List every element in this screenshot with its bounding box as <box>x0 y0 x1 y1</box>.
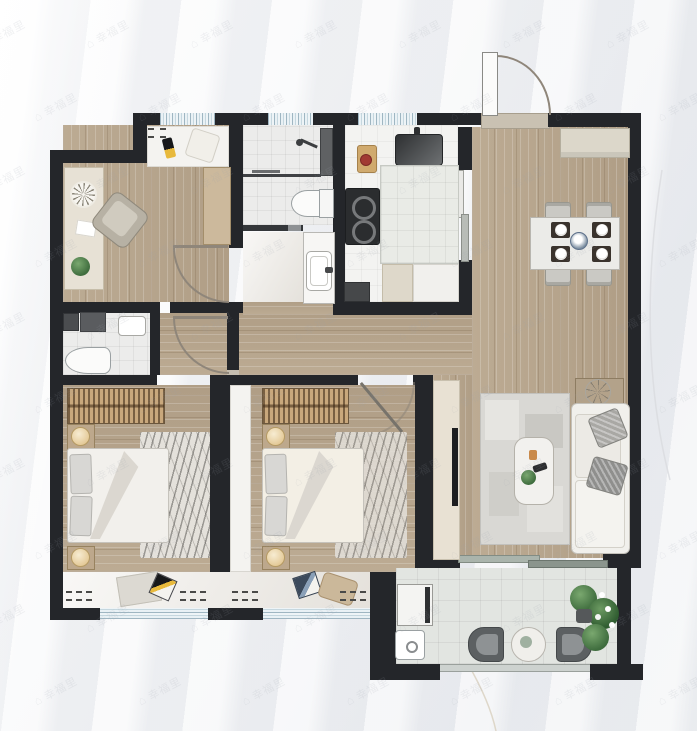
burner-icon <box>352 196 376 220</box>
bedroom2-lamp-top <box>266 427 285 446</box>
bedroom1-lamp-top <box>71 427 90 446</box>
wall-kitchen-living-bottom <box>458 260 472 302</box>
wall-bedroom1-top <box>63 375 157 385</box>
shower-glass-panel <box>320 128 333 176</box>
duvet-fold <box>90 451 152 539</box>
kitchen-sink <box>395 134 443 166</box>
plate <box>596 224 608 236</box>
mbath-cabinet-1 <box>63 313 79 331</box>
bedroom1-wardrobe <box>67 388 165 424</box>
study-window <box>160 113 215 125</box>
wall-bedroom2-living <box>415 375 433 558</box>
wall-bedroom-bay-2 <box>208 608 263 620</box>
plate <box>596 248 608 260</box>
balcony-lounge-chair <box>468 627 504 662</box>
washer-panel <box>425 587 430 623</box>
cooktop <box>345 188 380 245</box>
bed-pillow <box>69 454 92 495</box>
kitchen-mat-2 <box>413 264 459 302</box>
plate <box>555 224 567 236</box>
curtain-symbol <box>232 591 258 601</box>
wall-bedrooms-divider <box>210 375 230 572</box>
wall-bedroom-bay-1 <box>55 608 100 620</box>
mbath-basin <box>118 316 146 336</box>
wall-living-bottom-right <box>603 552 641 568</box>
towel-bar-icon <box>252 170 280 173</box>
table-centerpiece <box>570 232 588 250</box>
wall-balcony-right <box>617 568 631 664</box>
desk-clock <box>70 181 97 208</box>
wall-kitchen-living-top <box>458 127 472 170</box>
burner-icon <box>352 220 376 244</box>
place-setting <box>551 222 570 238</box>
wall-study-top <box>50 150 135 163</box>
bed-pillow <box>264 454 287 495</box>
wall-balcony-bottom-left <box>370 664 440 680</box>
rug-patch <box>485 400 519 440</box>
wall-masterbath-right <box>150 302 160 375</box>
sink-drain-icon <box>406 641 418 653</box>
food-bowl <box>360 154 372 166</box>
bedroom1-lamp-bottom <box>71 548 90 567</box>
bedroom2-wardrobe <box>262 388 349 424</box>
study-door-leaf <box>173 245 228 248</box>
bathroom-divider-line <box>243 174 321 177</box>
wall-study-bath <box>229 113 243 248</box>
kitchen-mat-1 <box>382 264 413 302</box>
bathroom-window <box>268 113 313 125</box>
mbath-toilet <box>65 347 111 374</box>
mbath-cabinet-2 <box>80 312 106 332</box>
desk-plant <box>71 257 90 276</box>
wall-left-outer <box>50 150 63 620</box>
balcony-plant <box>582 624 609 651</box>
study-side-cabinet <box>203 167 231 245</box>
place-setting <box>592 246 611 262</box>
bedroom2-slim-cabinet <box>230 385 251 572</box>
basin-faucet-icon <box>325 267 333 273</box>
plant-flowers <box>599 592 605 598</box>
curtain-symbol <box>148 128 166 138</box>
plant-pot <box>576 609 592 623</box>
chair-seat <box>562 634 584 655</box>
bedroom2-window <box>263 608 370 619</box>
balcony-sliding-door-panel-2 <box>528 560 608 568</box>
shoe-sideboard <box>560 128 630 158</box>
tray-icon <box>532 462 547 473</box>
entry-door-leaf <box>482 52 498 116</box>
duvet-fold <box>285 451 347 539</box>
kitchen-appliance <box>344 282 370 302</box>
toilet-tank <box>319 189 334 218</box>
office-chair-seat <box>100 199 139 238</box>
shower-head-dot <box>296 139 303 146</box>
tv <box>452 428 458 506</box>
wash-area-floor <box>243 232 303 302</box>
curtain-symbol <box>66 591 92 601</box>
kitchen-sliding-door-panel-2 <box>461 214 469 262</box>
side-table-plant-pot <box>585 379 611 405</box>
balcony-sink <box>395 630 425 660</box>
coffee-table <box>514 437 554 505</box>
wall-balcony-left <box>370 572 396 664</box>
candle-icon <box>529 450 537 460</box>
chair-seat <box>476 634 498 655</box>
wall-balcony-bottom-right <box>590 664 643 680</box>
kitchen-island <box>380 165 459 264</box>
balcony-round-table <box>511 627 546 662</box>
wall-bedroom2-top <box>230 375 358 385</box>
bathroom-partition-handle <box>288 225 301 231</box>
sink-faucet-icon <box>414 127 420 135</box>
hall-door-leaf <box>173 316 228 319</box>
table-plant <box>521 470 536 485</box>
bedroom1-window <box>100 608 208 619</box>
curtain-symbol <box>340 591 366 601</box>
plate <box>555 248 567 260</box>
place-setting <box>592 222 611 238</box>
balcony-railing <box>440 664 590 672</box>
table-decor <box>520 636 532 648</box>
wall-kitchen-bottom <box>333 302 472 315</box>
bed-pillow <box>69 496 92 537</box>
bed-pillow <box>264 496 287 537</box>
place-setting <box>551 246 570 262</box>
curtain-symbol <box>180 591 206 601</box>
washing-machine <box>397 584 433 626</box>
wall-top-3 <box>417 113 481 125</box>
kitchen-window <box>358 113 417 125</box>
wall-bay-top-left <box>133 113 160 125</box>
bedroom2-lamp-bottom <box>266 548 285 567</box>
floor-plan-image: ⌂幸福里⌂幸福里⌂幸福里⌂幸福里⌂幸福里⌂幸福里⌂幸福里⌂幸福里⌂幸福里⌂幸福里… <box>0 0 697 731</box>
